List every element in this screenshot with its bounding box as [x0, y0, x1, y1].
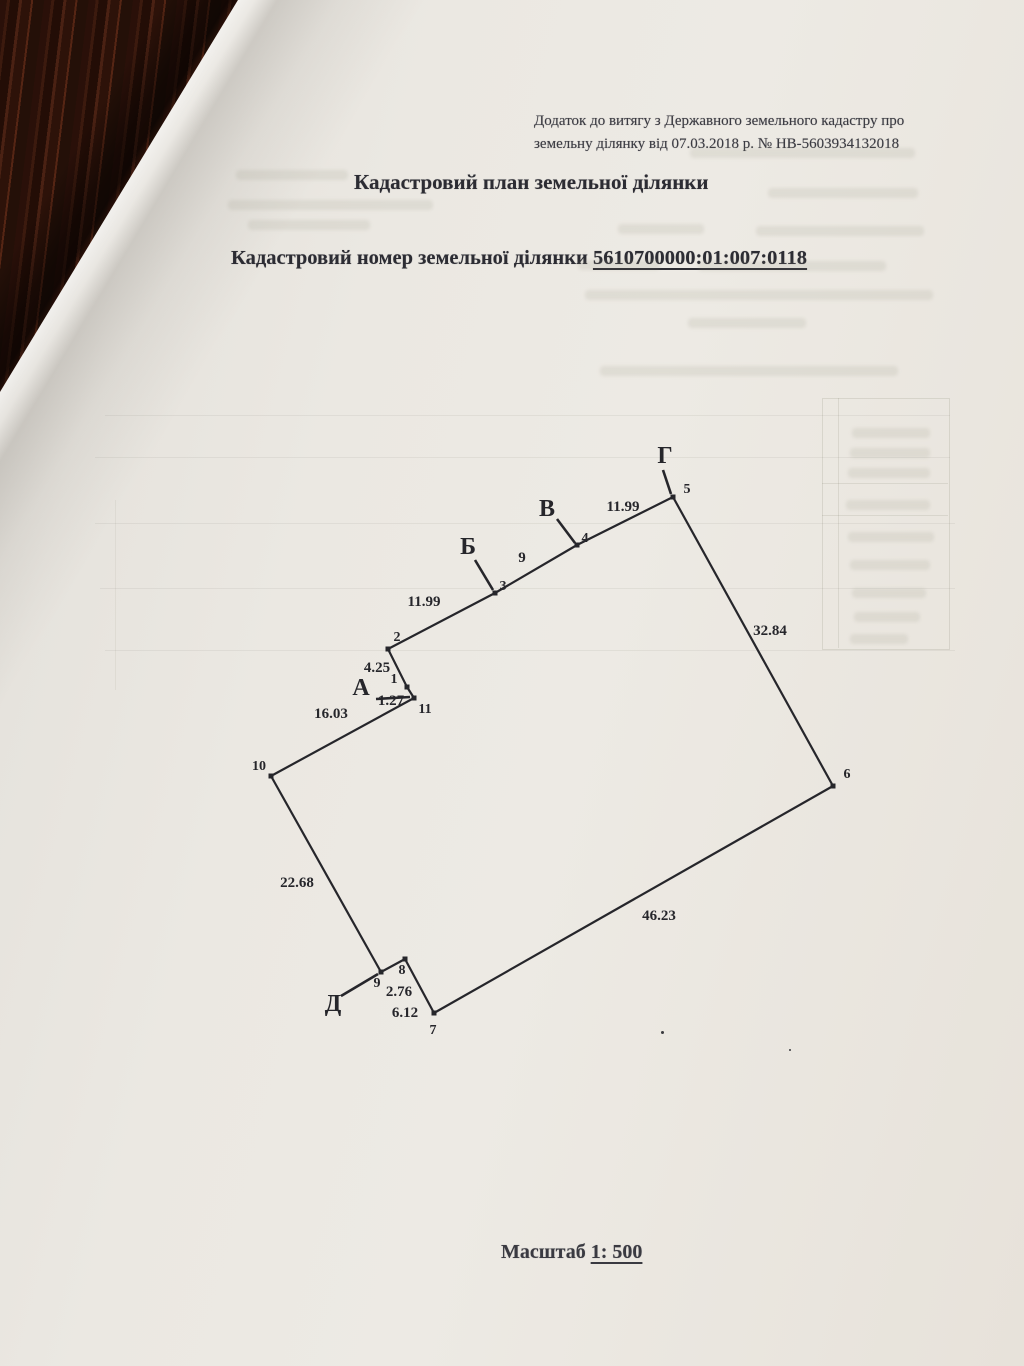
boundary-point-marker — [432, 1011, 437, 1016]
segment-length-label: 4.25 — [364, 660, 390, 676]
boundary-point-marker — [412, 696, 417, 701]
point-number-label: 11 — [418, 702, 431, 717]
segment-length-label: 32.84 — [753, 623, 787, 639]
segment-length-label: 11.99 — [408, 594, 441, 610]
corner-leader-line — [341, 974, 378, 996]
boundary-point-marker — [403, 957, 408, 962]
point-number-label: 8 — [399, 963, 406, 978]
point-number-label: 4 — [582, 531, 589, 546]
corner-letter: Д — [325, 991, 342, 1017]
boundary-segment-3-4 — [495, 545, 577, 593]
corner-letter: Б — [460, 534, 476, 560]
point-number-label: 7 — [430, 1023, 437, 1038]
boundary-segment-6-7 — [434, 786, 833, 1013]
segment-length-label: 16.03 — [314, 706, 348, 722]
corner-leader-line — [557, 519, 575, 543]
point-number-label: 9 — [374, 976, 381, 991]
corner-leader-line — [663, 470, 671, 494]
boundary-point-marker — [386, 647, 391, 652]
point-number-label: 10 — [252, 759, 266, 774]
boundary-segment-9-10 — [271, 776, 381, 972]
segment-length-label: 46.23 — [642, 908, 676, 924]
boundary-point-marker — [405, 685, 410, 690]
paper-sheet: Додаток до витягу з Державного земельног… — [0, 0, 1024, 1366]
segment-length-label: 11.99 — [607, 499, 640, 515]
segment-length-label: 6.12 — [392, 1005, 418, 1021]
boundary-point-marker — [493, 591, 498, 596]
corner-letter: В — [539, 496, 555, 522]
boundary-point-marker — [269, 774, 274, 779]
corner-letter: Г — [657, 443, 672, 469]
boundary-point-marker — [575, 543, 580, 548]
boundary-point-marker — [671, 495, 676, 500]
boundary-point-marker — [379, 970, 384, 975]
boundary-segment-2-3 — [388, 593, 495, 649]
point-number-label: 5 — [684, 482, 691, 497]
segment-length-label: 9 — [518, 550, 526, 566]
point-number-label: 6 — [844, 767, 851, 782]
boundary-segment-5-6 — [673, 497, 833, 786]
corner-leader-line — [475, 560, 493, 590]
point-number-label: 3 — [500, 579, 507, 594]
segment-length-label: 1.27 — [378, 693, 405, 709]
photo-of-cadastral-document: { "document": { "header_line1": "Додаток… — [0, 0, 1024, 1366]
corner-letter: А — [352, 675, 370, 701]
cadastral-plan-svg: АБВГД4.2511.99911.9932.8446.236.122.7622… — [0, 0, 1024, 1366]
segment-length-label: 22.68 — [280, 875, 314, 891]
segment-length-label: 2.76 — [386, 984, 413, 1000]
boundary-point-marker — [831, 784, 836, 789]
point-number-label: 2 — [394, 630, 401, 645]
point-number-label: 1 — [391, 672, 398, 687]
